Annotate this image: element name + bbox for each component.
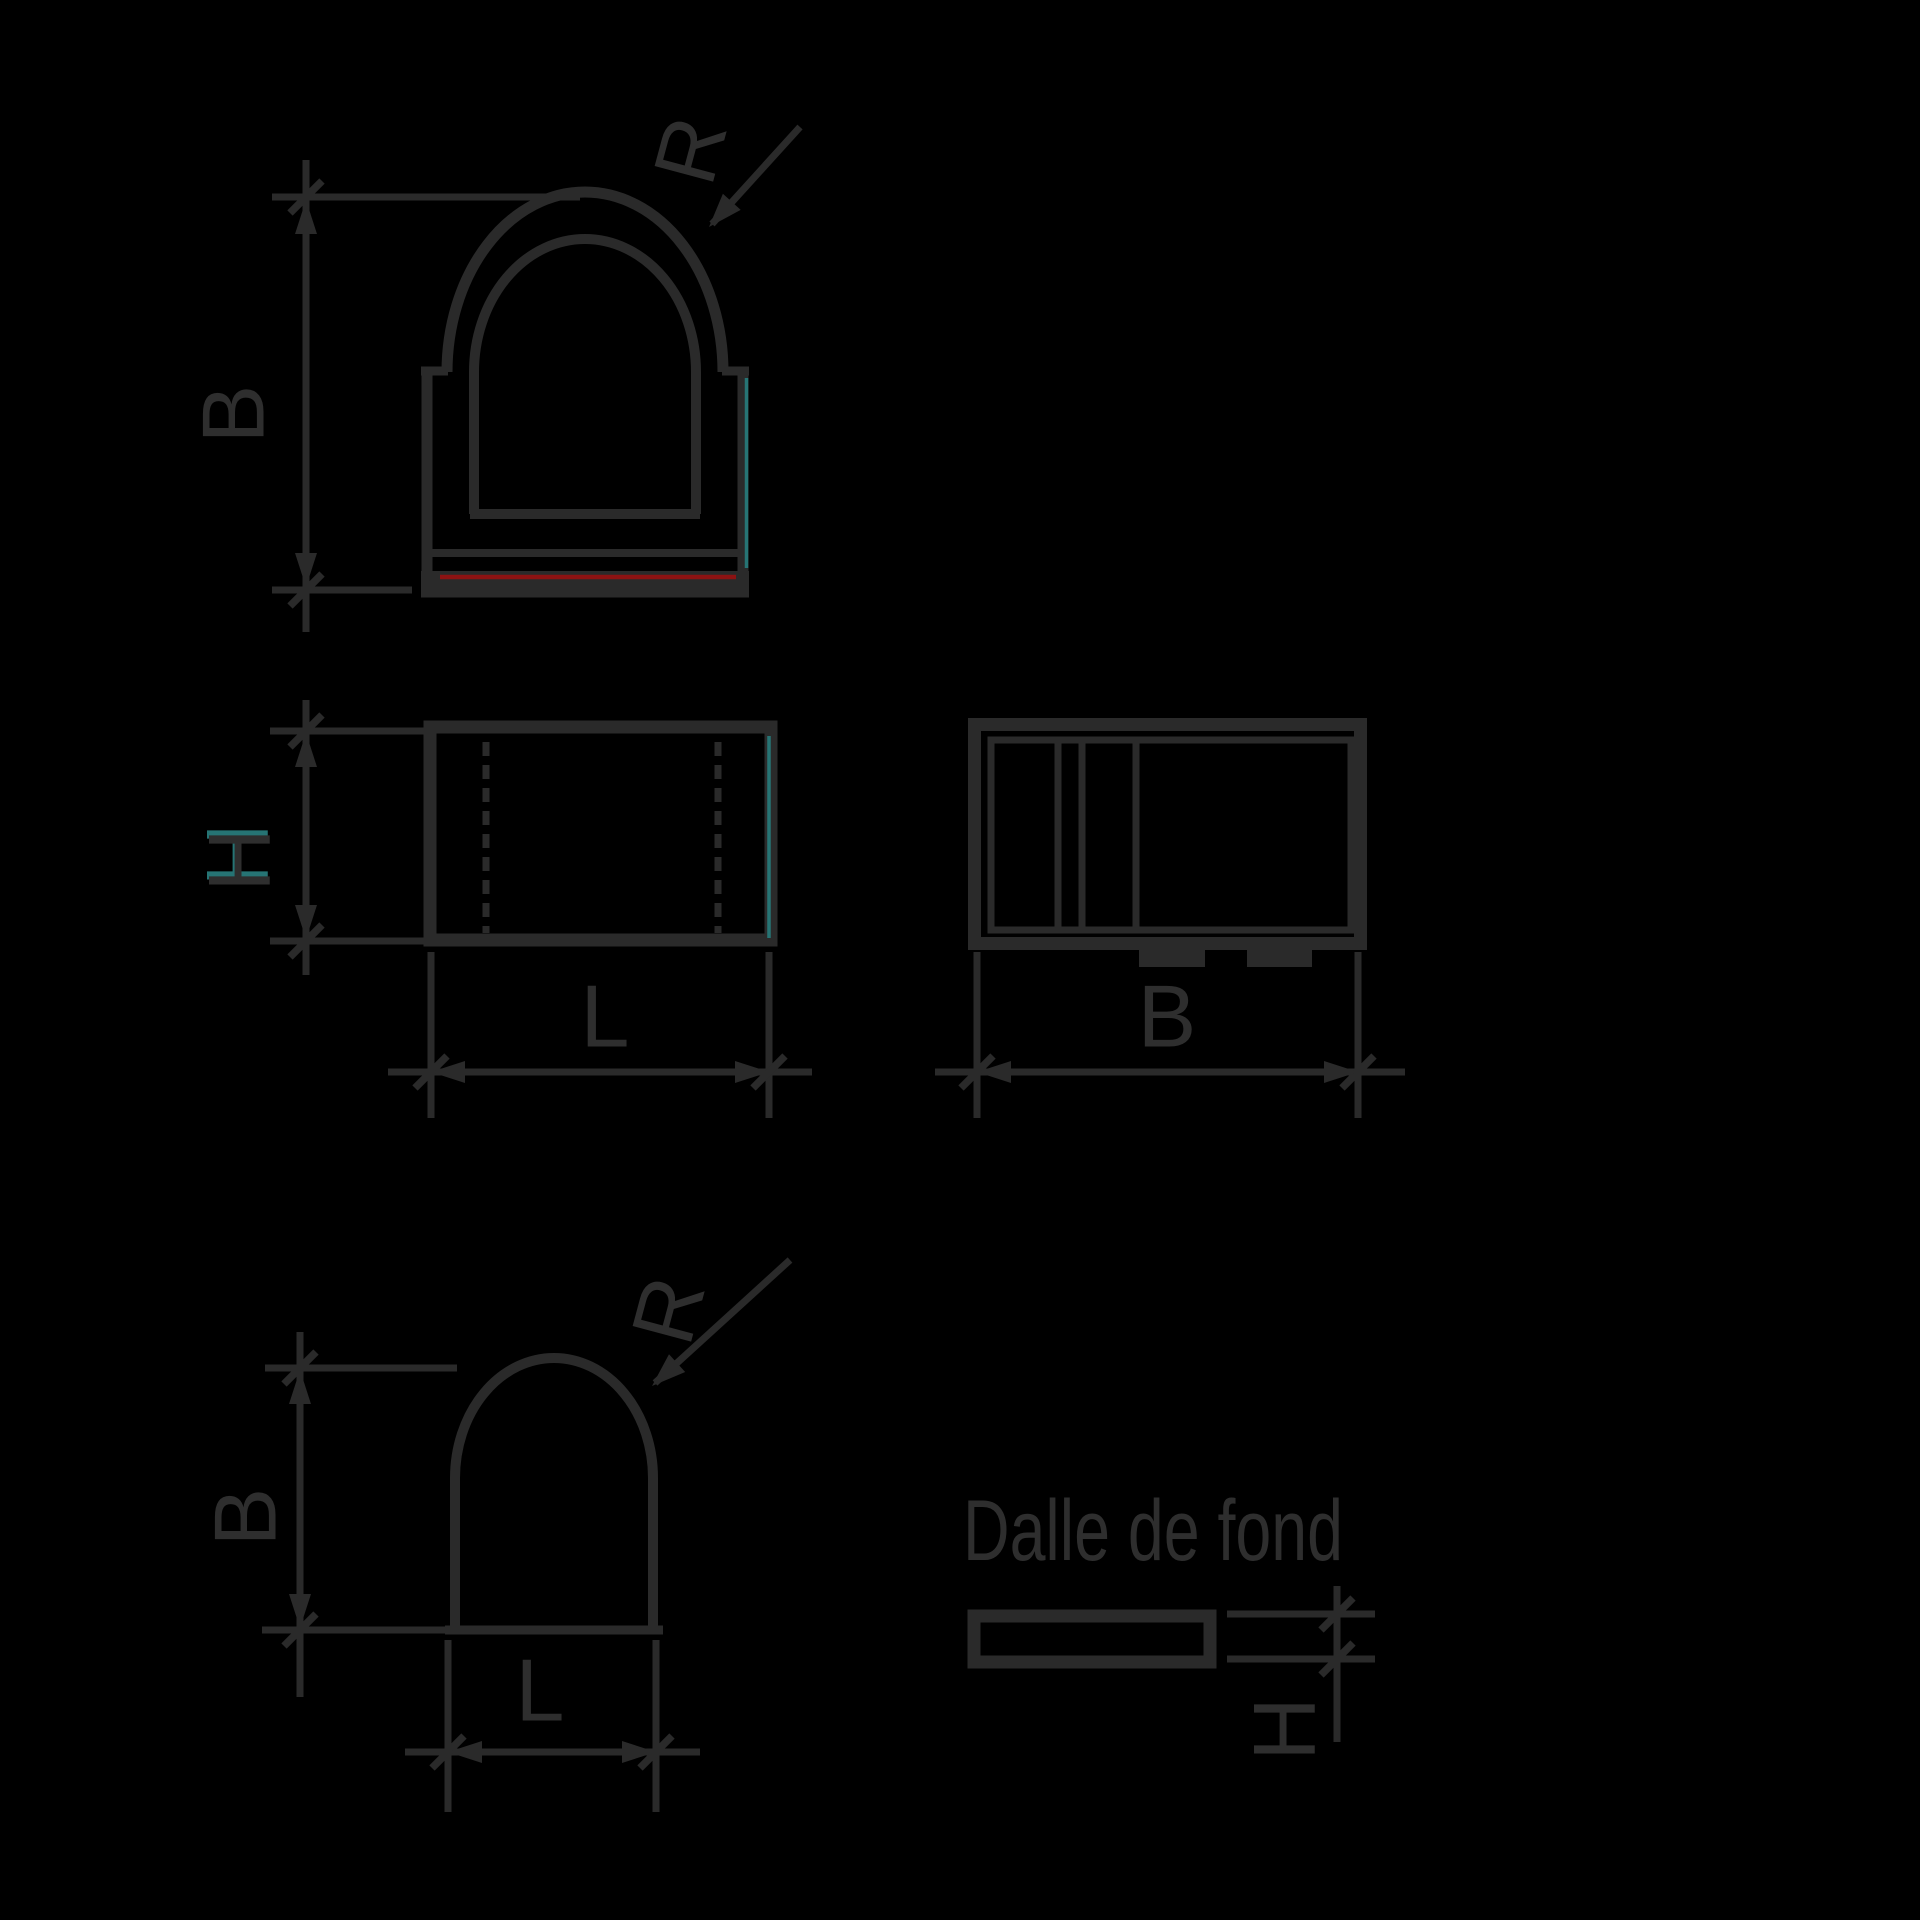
front-view <box>421 192 749 592</box>
side-height-label: H <box>190 828 289 892</box>
end-width-label: B <box>1138 967 1197 1066</box>
end-outline <box>975 725 1361 944</box>
front-radius-label: R <box>634 106 746 193</box>
front-outer-dome <box>447 192 723 372</box>
front-inner-dome <box>474 239 696 372</box>
side-view <box>430 727 771 940</box>
end-inner-rim <box>991 740 1351 930</box>
slab-thickness-label: H <box>1235 1697 1334 1761</box>
side-height-dimension <box>270 700 424 975</box>
slab-outline <box>974 1616 1210 1662</box>
arch-view <box>262 1358 663 1630</box>
arch-width-label: B <box>196 1488 295 1547</box>
arch-length-label: L <box>516 1641 565 1740</box>
end-bottom-tab-left <box>1139 944 1205 967</box>
end-bottom-tab-right <box>1247 944 1312 967</box>
culvert-dimension-drawing: B R H H L B B R L Dalle de fond H <box>0 0 1920 1920</box>
slab-title: Dalle de fond <box>963 1483 1343 1579</box>
arch-dome <box>455 1358 653 1478</box>
front-base-slab-band <box>421 571 749 595</box>
end-view <box>975 725 1361 944</box>
technical-drawing-page: B R H H L B B R L Dalle de fond H <box>0 0 1920 1920</box>
side-length-label: L <box>581 967 630 1066</box>
arch-radius-label: R <box>612 1266 724 1353</box>
slab-view <box>974 1616 1210 1662</box>
front-width-label: B <box>184 385 283 444</box>
